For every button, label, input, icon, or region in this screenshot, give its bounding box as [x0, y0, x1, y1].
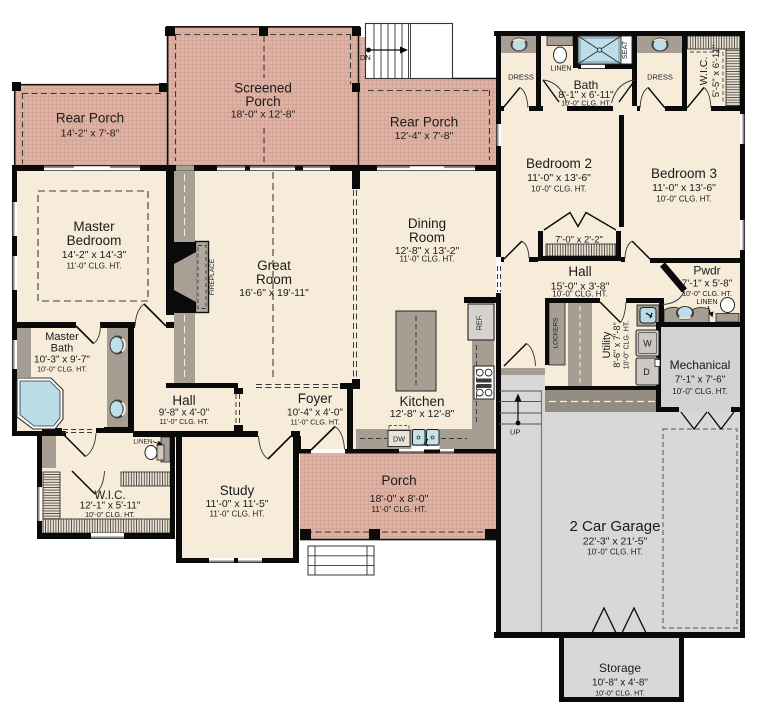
svg-text:2 Car Garage: 2 Car Garage [570, 518, 661, 535]
svg-text:DW: DW [393, 435, 405, 444]
svg-text:Porch: Porch [245, 94, 280, 109]
svg-text:5'-5" x 6'-11": 5'-5" x 6'-11" [711, 45, 722, 97]
svg-text:22'-3" x 21'-5": 22'-3" x 21'-5" [583, 536, 648, 548]
svg-text:10'-8" x 4'-8": 10'-8" x 4'-8" [592, 678, 648, 689]
svg-text:Study: Study [220, 483, 255, 498]
svg-text:11'-0" CLG. HT.: 11'-0" CLG. HT. [372, 505, 427, 514]
svg-text:DRESS: DRESS [508, 73, 534, 82]
svg-text:Master: Master [73, 219, 115, 234]
svg-text:DRESS: DRESS [647, 73, 673, 82]
svg-text:10'-0" CLG. HT.: 10'-0" CLG. HT. [656, 195, 712, 204]
svg-text:12'-8" x 12'-8": 12'-8" x 12'-8" [390, 408, 455, 420]
svg-text:14'-2" x 14'-3": 14'-2" x 14'-3" [62, 249, 127, 261]
svg-text:Room: Room [409, 230, 445, 245]
svg-text:D: D [643, 367, 650, 377]
svg-text:8'-6" x 7'-8": 8'-6" x 7'-8" [612, 322, 622, 367]
svg-text:Great: Great [257, 258, 291, 273]
svg-text:18'-0" x 12'-8": 18'-0" x 12'-8" [231, 109, 296, 121]
svg-text:16'-6" x 19'-11": 16'-6" x 19'-11" [239, 287, 309, 299]
svg-text:REF.: REF. [475, 315, 484, 331]
svg-text:10'-0" CLG. HT.: 10'-0" CLG. HT. [672, 387, 728, 396]
svg-text:LOCKERS: LOCKERS [553, 317, 560, 349]
svg-text:FIREPLACE: FIREPLACE [209, 258, 216, 295]
svg-text:Master: Master [45, 331, 79, 343]
svg-text:W: W [643, 339, 652, 349]
svg-text:Bedroom 3: Bedroom 3 [651, 166, 717, 181]
svg-text:11'-0" CLG. HT.: 11'-0" CLG. HT. [400, 255, 455, 264]
svg-text:Bedroom: Bedroom [67, 233, 122, 248]
svg-text:10'-0" CLG. HT.: 10'-0" CLG. HT. [85, 510, 135, 519]
svg-text:LINEN: LINEN [133, 439, 152, 446]
svg-text:10'-0" CLG. HT.: 10'-0" CLG. HT. [552, 290, 608, 299]
svg-text:Bedroom 2: Bedroom 2 [526, 156, 592, 171]
svg-text:10'-0" CLG. HT.: 10'-0" CLG. HT. [561, 99, 611, 108]
svg-text:LINEN: LINEN [550, 64, 571, 73]
svg-text:10'-0" CLG. HT.: 10'-0" CLG. HT. [595, 689, 645, 698]
svg-text:Room: Room [256, 272, 292, 287]
svg-text:Porch: Porch [381, 473, 416, 488]
svg-text:Foyer: Foyer [298, 391, 333, 406]
svg-text:10'-0" CLG. HT.: 10'-0" CLG. HT. [587, 548, 643, 557]
svg-text:W.I.C.: W.I.C. [698, 57, 710, 86]
svg-text:Rear Porch: Rear Porch [56, 111, 124, 126]
svg-text:7'-0" x 2'-2": 7'-0" x 2'-2" [555, 235, 603, 246]
svg-text:Storage: Storage [599, 661, 641, 675]
svg-text:Pwdr: Pwdr [693, 264, 720, 278]
svg-text:Bath: Bath [51, 343, 74, 355]
svg-text:7'-1" x 7'-6": 7'-1" x 7'-6" [675, 375, 726, 386]
svg-text:LINEN: LINEN [696, 297, 717, 306]
svg-text:Dining: Dining [408, 216, 446, 231]
svg-text:Hall: Hall [568, 264, 591, 279]
svg-text:10'-0" CLG. HT.: 10'-0" CLG. HT. [531, 185, 587, 194]
svg-text:11'-0" CLG. HT.: 11'-0" CLG. HT. [290, 418, 339, 427]
svg-text:14'-2" x 7'-8": 14'-2" x 7'-8" [61, 128, 120, 140]
svg-text:10'-0" CLG. HT.: 10'-0" CLG. HT. [37, 365, 87, 374]
svg-text:18'-0" x 8'-0": 18'-0" x 8'-0" [370, 493, 429, 505]
svg-text:SEAT: SEAT [620, 40, 629, 59]
svg-text:11'-0" x 13'-6": 11'-0" x 13'-6" [652, 182, 716, 194]
svg-text:11'-0" CLG. HT.: 11'-0" CLG. HT. [159, 417, 208, 426]
svg-text:12'-4" x 7'-8": 12'-4" x 7'-8" [395, 130, 454, 142]
svg-text:Hall: Hall [172, 393, 195, 408]
svg-text:DN: DN [360, 53, 371, 62]
svg-text:7'-1" x 5'-8": 7'-1" x 5'-8" [682, 279, 733, 290]
svg-text:UP: UP [510, 428, 520, 437]
svg-text:11'-0" CLG. HT.: 11'-0" CLG. HT. [210, 510, 265, 519]
svg-text:11'-0" x 13'-6": 11'-0" x 13'-6" [527, 172, 591, 184]
svg-text:11'-0" x 11'-5": 11'-0" x 11'-5" [205, 498, 268, 510]
svg-text:Mechanical: Mechanical [670, 358, 731, 372]
svg-text:Rear Porch: Rear Porch [390, 115, 458, 130]
svg-text:11'-0" CLG. HT.: 11'-0" CLG. HT. [67, 262, 122, 271]
svg-text:10'-0" CLG. HT.: 10'-0" CLG. HT. [624, 321, 631, 370]
svg-text:Kitchen: Kitchen [399, 394, 444, 409]
